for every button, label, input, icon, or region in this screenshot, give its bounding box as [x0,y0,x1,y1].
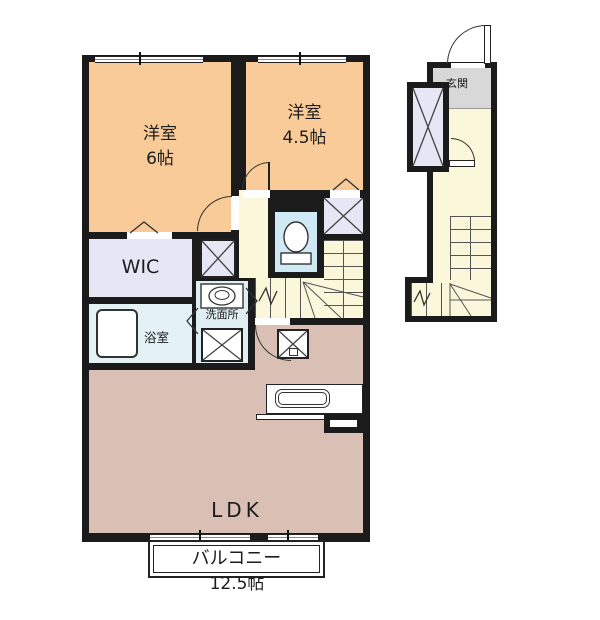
toilet-icon [279,220,313,270]
sink-icon [200,283,244,309]
kitchen-counter-icon [266,384,363,414]
stairs-entrance-run [450,216,491,280]
hallway [239,190,268,278]
washer-icon [201,328,243,362]
door-gap-bedroom6 [231,196,239,230]
pipe-space [324,414,363,433]
door-gap-ldk [255,318,290,325]
window-tick [299,52,301,65]
bathtub-icon [96,309,138,358]
closet-x-icon-hall [200,239,236,278]
window-bedroom45 [258,56,346,63]
kitchen-sink-icon [275,389,330,408]
entry-door-arc [447,25,486,64]
inner-door-leaf [449,160,475,167]
wic-label: WIC [122,254,160,282]
bedroom-6-size: 6帖 [146,149,174,169]
entry-door-leaf [484,25,491,64]
folding-door-washroom [246,288,258,314]
door-gap-closet45 [330,190,360,198]
bedroom-6-label: 洋室6帖 [143,122,177,171]
door-gap-wic [127,232,172,239]
stair-direction-arrow-entrance [413,288,431,308]
folding-door-bathroom [186,308,198,334]
balcony-label: バルコニー [192,546,282,572]
closet-x-icon-bedroom45 [324,198,363,234]
shoe-closet-x-icon [413,88,443,166]
washroom-label: 洗面所 [196,307,248,323]
wic-room: WIC [89,239,192,297]
door-leaf-bedroom45 [268,162,270,190]
door-gap-bedroom45 [243,190,270,198]
bedroom-45-label: 洋室4.5帖 [282,101,326,150]
balcony: バルコニー [148,540,325,578]
genkan-label: 玄関 [446,76,468,92]
folding-door-closet45 [333,178,359,190]
bedroom-45-size: 4.5帖 [282,128,326,148]
folding-door-wic [130,221,158,233]
bathroom-label: 浴室 [144,329,169,347]
stair-direction-arrow-main [258,285,278,307]
window-tick [139,52,141,65]
ldk-name: LDK [167,496,307,525]
window-bedroom6 [95,56,203,63]
